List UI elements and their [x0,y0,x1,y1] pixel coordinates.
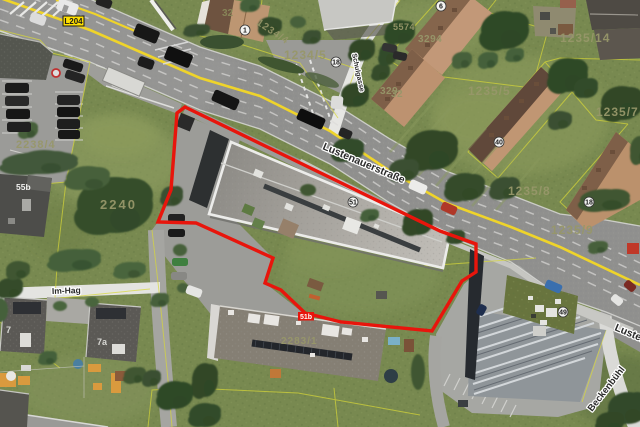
svg-text:1235/14: 1235/14 [560,31,610,45]
svg-text:2283/1: 2283/1 [281,336,318,347]
svg-text:7: 7 [6,325,11,335]
svg-text:40: 40 [495,140,503,147]
svg-text:1235/7: 1235/7 [596,105,639,119]
svg-text:1235/8: 1235/8 [508,184,551,198]
svg-text:49: 49 [559,310,567,317]
svg-text:1235/5: 1235/5 [468,84,511,98]
svg-text:55b: 55b [16,182,31,192]
svg-text:32: 32 [222,8,234,19]
svg-text:51b: 51b [300,314,312,321]
svg-text:Im-Hag: Im-Hag [52,285,81,296]
svg-text:18: 18 [332,60,340,67]
svg-text:1234/5: 1234/5 [284,48,327,62]
svg-text:1235/9: 1235/9 [551,223,594,237]
svg-text:7a: 7a [97,337,108,347]
svg-text:32: 32 [391,89,403,100]
svg-text:3294: 3294 [418,34,442,45]
svg-text:2240: 2240 [100,197,137,212]
svg-text:L204: L204 [64,17,83,26]
svg-text:1: 1 [243,28,247,35]
svg-text:5574: 5574 [393,22,415,32]
svg-text:18: 18 [585,200,593,207]
svg-text:51: 51 [349,200,357,207]
svg-text:2238/4: 2238/4 [16,139,56,151]
svg-text:6: 6 [439,4,443,11]
